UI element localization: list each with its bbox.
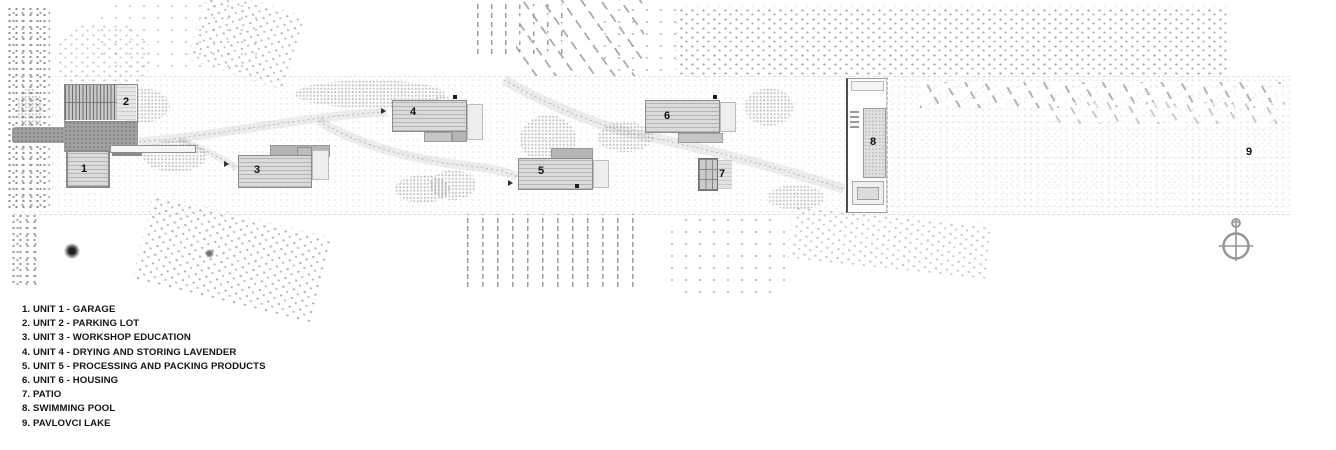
door-marker xyxy=(713,95,717,99)
pool-step xyxy=(850,126,859,128)
pool-terrace-inner xyxy=(857,187,879,200)
unit-label-3: 3 xyxy=(250,164,264,177)
unit-6-terrace xyxy=(720,102,736,132)
legend-item-3: 3. UNIT 3 - WORKSHOP EDUCATION xyxy=(22,331,442,345)
entrance-arrow-icon xyxy=(224,161,229,167)
unit-5-processing-packing xyxy=(518,148,610,190)
door-marker xyxy=(453,95,457,99)
unit-label-4: 4 xyxy=(406,106,420,119)
lake-shore-hatching xyxy=(1040,102,1285,124)
unit-6-main-roof xyxy=(645,100,720,133)
legend-item-6: 6. UNIT 6 - HOUSING xyxy=(22,374,442,388)
access-road xyxy=(12,127,66,143)
unit-4-annex xyxy=(424,132,452,142)
legend-item-4: 4. UNIT 4 - DRYING AND STORING LAVENDER xyxy=(22,346,442,360)
pool-step xyxy=(850,111,859,113)
vegetation-field-top-right xyxy=(676,6,1230,77)
legend-item-9: 9. PAVLOVCI LAKE xyxy=(22,417,442,431)
north-arrow-icon xyxy=(1216,216,1256,266)
tree-symbol-small xyxy=(205,249,214,258)
tree-cluster xyxy=(395,175,450,203)
dock-shadow xyxy=(112,152,142,156)
legend-item-2: 2. UNIT 2 - PARKING LOT xyxy=(22,317,442,331)
unit-3-terrace xyxy=(312,150,329,180)
unit-5-terrace xyxy=(593,160,609,188)
crop-rows-vertical-bottom xyxy=(467,214,643,290)
vegetation-patch-bottom-mid xyxy=(665,214,793,296)
vegetation-rows-bottom-right xyxy=(788,204,993,280)
tree-cluster xyxy=(17,88,43,130)
unit-4-terrace xyxy=(467,104,483,140)
legend-item-1: 1. UNIT 1 - GARAGE xyxy=(22,303,442,317)
unit-6-housing xyxy=(645,98,737,144)
unit-label-9: 9 xyxy=(1242,146,1256,159)
unit-label-1: 1 xyxy=(77,163,91,176)
entrance-arrow-icon xyxy=(381,108,386,114)
pool-step xyxy=(850,121,859,123)
pool-terrace xyxy=(852,181,884,205)
tree-cluster xyxy=(745,88,793,126)
unit-4-main-roof xyxy=(392,100,467,132)
unit-6-annex xyxy=(678,133,723,143)
pool-step xyxy=(850,116,859,118)
unit-4-drying-storing xyxy=(392,98,484,144)
door-marker xyxy=(575,184,579,188)
legend-item-8: 8. SWIMMING POOL xyxy=(22,402,442,416)
unit-label-8: 8 xyxy=(866,136,880,149)
unit-5-main-roof xyxy=(518,158,593,190)
legend-item-5: 5. UNIT 5 - PROCESSING AND PACKING PRODU… xyxy=(22,360,442,374)
vegetation-patch-top-mid xyxy=(598,4,688,74)
unit-label-7: 7 xyxy=(715,168,729,181)
tree-symbol-dark xyxy=(64,243,80,259)
entrance-arrow-icon xyxy=(508,180,513,186)
unit-label-6: 6 xyxy=(660,110,674,123)
legend-item-7: 7. PATIO xyxy=(22,388,442,402)
unit-label-5: 5 xyxy=(534,165,548,178)
unit-label-2: 2 xyxy=(119,96,133,109)
tree-cluster xyxy=(768,185,824,210)
parking-divider-line xyxy=(65,102,117,103)
legend: 1. UNIT 1 - GARAGE 2. UNIT 2 - PARKING L… xyxy=(22,303,442,431)
vegetation-patch-left-bottom xyxy=(10,213,40,285)
pool-equipment-block xyxy=(851,81,884,91)
